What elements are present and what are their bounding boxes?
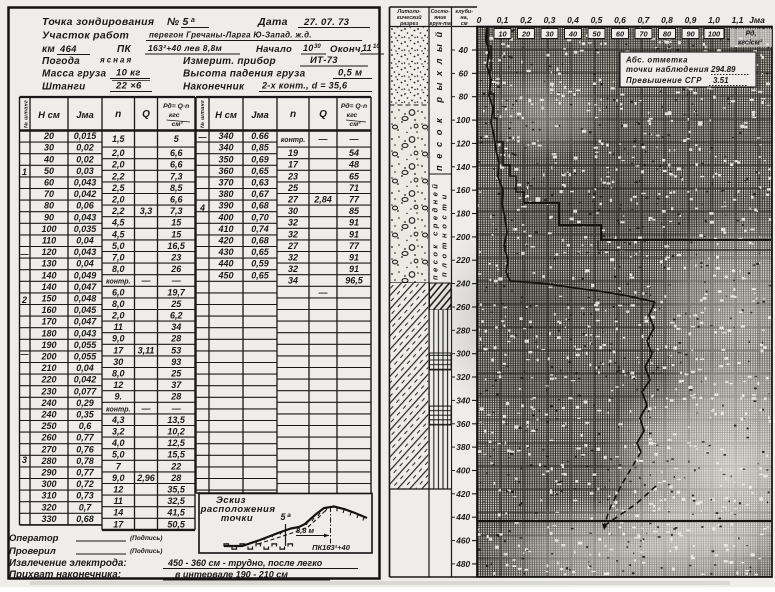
svg-text:71: 71	[349, 183, 359, 193]
svg-text:0,68: 0,68	[251, 236, 269, 246]
svg-text:310: 310	[41, 491, 56, 501]
svg-text:Q: Q	[142, 109, 150, 120]
svg-text:Јма: Јма	[749, 15, 765, 25]
svg-text:15,5: 15,5	[167, 450, 186, 460]
svg-text:Јма: Јма	[76, 110, 94, 121]
svg-text:глуби-: глуби-	[455, 8, 473, 15]
svg-text:4,0: 4,0	[111, 438, 125, 448]
svg-text:32: 32	[288, 253, 298, 263]
svg-text:в интервале 190 - 210 см: в интервале 190 - 210 см	[175, 570, 288, 580]
svg-text:17: 17	[288, 160, 299, 170]
svg-text:11: 11	[362, 43, 372, 53]
svg-text:1,5: 1,5	[112, 134, 126, 144]
svg-text:2: 2	[21, 295, 27, 305]
svg-text:0,042: 0,042	[74, 189, 97, 199]
svg-text:120: 120	[41, 247, 56, 257]
svg-text:—: —	[171, 276, 182, 286]
svg-text:5,0: 5,0	[112, 241, 125, 251]
svg-text:28: 28	[170, 473, 181, 483]
svg-text:см²: см²	[349, 121, 361, 128]
svg-text:2,96: 2,96	[136, 473, 156, 483]
svg-text:10: 10	[373, 44, 380, 50]
svg-text:0,63: 0,63	[251, 178, 269, 188]
svg-text:2,0: 2,0	[111, 195, 125, 205]
svg-text:3,11: 3,11	[138, 345, 155, 355]
svg-text:0,2: 0,2	[520, 15, 532, 25]
svg-text:22: 22	[170, 461, 181, 471]
svg-text:280: 280	[40, 456, 56, 466]
svg-text:230: 230	[40, 386, 56, 396]
svg-text:130: 130	[41, 259, 56, 269]
svg-text:Превышение СГР: Превышение СГР	[626, 76, 702, 85]
svg-text:0,04: 0,04	[76, 259, 94, 269]
svg-text:0,72: 0,72	[76, 479, 94, 489]
svg-text:0,055: 0,055	[74, 352, 98, 362]
svg-text:а: а	[191, 17, 195, 24]
svg-text:ясная: ясная	[99, 56, 133, 65]
svg-text:км: км	[42, 44, 55, 55]
svg-text:464: 464	[59, 44, 77, 55]
svg-text:27: 27	[287, 195, 299, 205]
svg-text:70: 70	[44, 189, 54, 199]
svg-text:0,04: 0,04	[76, 236, 94, 246]
svg-text:8,0: 8,0	[112, 369, 125, 379]
svg-text:93: 93	[171, 357, 181, 367]
svg-text:410: 410	[217, 224, 233, 234]
svg-text:90: 90	[686, 30, 695, 39]
svg-text:см²: см²	[172, 121, 184, 128]
svg-text:0,76: 0,76	[76, 444, 95, 454]
svg-text:160: 160	[456, 185, 470, 195]
svg-text:35,5: 35,5	[167, 485, 186, 495]
svg-text:Н см: Н см	[215, 110, 237, 121]
svg-text:0,043: 0,043	[74, 328, 97, 338]
svg-text:330: 330	[41, 514, 56, 524]
svg-text:96,5: 96,5	[345, 276, 364, 286]
svg-text:32,5: 32,5	[167, 496, 186, 506]
svg-text:0,9: 0,9	[685, 15, 697, 25]
svg-text:100: 100	[456, 115, 470, 125]
svg-text:Погода: Погода	[42, 56, 80, 67]
svg-text:0,3: 0,3	[544, 15, 556, 25]
svg-text:—: —	[318, 287, 329, 297]
svg-text:Дата: Дата	[257, 16, 288, 28]
svg-text:300: 300	[41, 479, 56, 489]
svg-text:Оператор: Оператор	[9, 533, 59, 544]
svg-text:25: 25	[287, 183, 299, 193]
svg-text:12: 12	[113, 380, 123, 390]
svg-text:290: 290	[40, 468, 56, 478]
svg-text:Рд,: Рд,	[746, 30, 757, 38]
svg-text:0,29: 0,29	[76, 398, 94, 408]
svg-text:6,6: 6,6	[170, 148, 184, 158]
svg-text:0,5 м: 0,5 м	[338, 68, 362, 79]
svg-text:380: 380	[218, 189, 233, 199]
svg-text:2,5: 2,5	[111, 183, 126, 193]
svg-text:0,77: 0,77	[76, 433, 95, 443]
svg-text:70: 70	[639, 30, 648, 39]
svg-text:11: 11	[114, 496, 123, 506]
svg-text:1,1: 1,1	[732, 15, 744, 25]
svg-text:25: 25	[170, 299, 182, 309]
svg-text:4,5: 4,5	[111, 229, 126, 239]
svg-text:0,06: 0,06	[76, 201, 95, 211]
svg-text:4,5: 4,5	[111, 218, 126, 228]
svg-text:0.66: 0.66	[251, 131, 270, 141]
svg-text:8,0: 8,0	[112, 299, 125, 309]
svg-text:20: 20	[521, 30, 531, 39]
svg-text:0,03: 0,03	[76, 166, 94, 176]
svg-text:54: 54	[349, 148, 359, 158]
svg-text:0,043: 0,043	[74, 178, 97, 188]
svg-text:140: 140	[456, 162, 470, 172]
svg-text:2,0: 2,0	[111, 311, 125, 321]
svg-text:0,4: 0,4	[567, 15, 579, 25]
svg-text:27: 27	[287, 241, 299, 251]
svg-text:0,69: 0,69	[251, 154, 269, 164]
svg-text:91: 91	[349, 218, 359, 228]
svg-text:240: 240	[40, 410, 56, 420]
svg-text:370: 370	[218, 178, 233, 188]
svg-text:0,8: 0,8	[661, 15, 673, 25]
svg-text:10: 10	[498, 30, 507, 39]
svg-text:120: 120	[456, 138, 470, 148]
svg-text:0,055: 0,055	[74, 340, 98, 350]
svg-text:0,70: 0,70	[251, 212, 269, 222]
svg-text:Прихват наконечника:: Прихват наконечника:	[9, 570, 121, 581]
svg-text:Масса груза: Масса груза	[42, 69, 106, 80]
svg-text:15: 15	[171, 229, 182, 239]
svg-text:460: 460	[455, 536, 470, 546]
svg-text:3.51: 3.51	[713, 76, 729, 85]
svg-text:1,0: 1,0	[708, 15, 720, 25]
svg-text:14: 14	[113, 508, 123, 518]
svg-text:Штанги: Штанги	[42, 82, 86, 93]
svg-text:10: 10	[303, 43, 314, 53]
svg-text:Оконч.: Оконч.	[330, 44, 364, 55]
svg-text:440: 440	[455, 512, 470, 522]
svg-text:9,0: 9,0	[112, 473, 125, 483]
svg-text:26: 26	[170, 264, 182, 274]
svg-text:Точка зондирования: Точка зондирования	[42, 16, 154, 28]
svg-text:8,5: 8,5	[170, 183, 184, 193]
svg-text:0,043: 0,043	[74, 247, 97, 257]
svg-text:0,7: 0,7	[79, 502, 93, 512]
svg-text:400: 400	[455, 466, 470, 476]
svg-text:Проверил: Проверил	[9, 546, 56, 557]
svg-text:163²+40 лев 8,8м: 163²+40 лев 8,8м	[148, 43, 223, 53]
svg-text:2,2: 2,2	[111, 206, 125, 216]
svg-text:15: 15	[171, 218, 182, 228]
svg-text:—: —	[318, 134, 329, 144]
svg-text:0,049: 0,049	[74, 270, 97, 280]
svg-text:40: 40	[43, 154, 54, 164]
svg-text:№ штанг: № штанг	[24, 100, 30, 128]
svg-text:контр.: контр.	[281, 137, 306, 144]
svg-text:30: 30	[113, 357, 123, 367]
svg-text:350: 350	[218, 154, 233, 164]
svg-text:23: 23	[287, 171, 298, 181]
svg-text:Высота падения груза: Высота падения груза	[183, 69, 306, 80]
svg-text:91: 91	[349, 253, 359, 263]
svg-text:13,5: 13,5	[167, 415, 186, 425]
svg-text:n: n	[115, 109, 121, 120]
svg-text:430: 430	[217, 247, 233, 257]
svg-text:0,78: 0,78	[76, 456, 94, 466]
svg-text:450: 450	[217, 270, 233, 280]
svg-text:контр.: контр.	[106, 406, 131, 413]
svg-text:0,65: 0,65	[251, 247, 270, 257]
svg-text:0,67: 0,67	[251, 189, 270, 199]
svg-text:0,043: 0,043	[74, 212, 97, 222]
svg-text:Q: Q	[319, 109, 327, 120]
svg-text:1: 1	[22, 167, 27, 177]
svg-text:140: 140	[41, 282, 56, 292]
svg-text:6,2: 6,2	[170, 311, 183, 321]
svg-text:7,3: 7,3	[170, 171, 183, 181]
svg-text:80: 80	[459, 92, 469, 102]
svg-text:0,35: 0,35	[76, 410, 95, 420]
svg-text:19: 19	[288, 148, 298, 158]
svg-text:400: 400	[217, 212, 233, 222]
svg-text:41,5: 41,5	[166, 508, 186, 518]
svg-text:(Подпись): (Подпись)	[130, 547, 162, 555]
svg-text:0,74: 0,74	[251, 224, 269, 234]
svg-text:4: 4	[199, 203, 205, 213]
svg-text:220: 220	[40, 375, 56, 385]
svg-text:точки наблюдения: точки наблюдения	[626, 65, 709, 74]
svg-text:170: 170	[41, 317, 56, 327]
svg-text:294.89: 294.89	[710, 65, 736, 74]
svg-text:150: 150	[41, 294, 56, 304]
svg-text:0,047: 0,047	[74, 317, 98, 327]
svg-text:140: 140	[41, 270, 56, 280]
svg-text:Рд= Q·n: Рд= Q·n	[163, 102, 189, 110]
svg-text:0,015: 0,015	[74, 131, 98, 141]
svg-text:80: 80	[663, 30, 672, 39]
svg-text:90: 90	[44, 212, 54, 222]
svg-text:6,6: 6,6	[170, 160, 184, 170]
svg-text:250: 250	[40, 421, 56, 431]
svg-text:34: 34	[288, 276, 298, 286]
svg-text:разрез: разрез	[399, 21, 418, 27]
svg-text:30: 30	[288, 206, 298, 216]
svg-text:а: а	[287, 512, 291, 519]
svg-text:0,047: 0,047	[74, 282, 98, 292]
svg-text:4,3: 4,3	[111, 415, 125, 425]
svg-text:2,0: 2,0	[111, 148, 125, 158]
svg-text:7,3: 7,3	[170, 206, 183, 216]
svg-text:0: 0	[477, 15, 482, 25]
svg-text:2-х конт., d = 35,6: 2-х конт., d = 35,6	[261, 81, 348, 91]
svg-text:8,8 м: 8,8 м	[296, 526, 315, 535]
svg-text:360: 360	[218, 166, 233, 176]
svg-text:Наконечник: Наконечник	[183, 82, 245, 93]
svg-text:—: —	[198, 133, 208, 142]
svg-text:—: —	[171, 403, 182, 413]
svg-text:—: —	[20, 250, 30, 259]
svg-text:360: 360	[456, 419, 470, 429]
svg-text:перегон Гречаны-Ларга Ю-Запа: перегон Гречаны-Ларга Ю-Запад. ж.д.	[149, 31, 312, 40]
svg-text:—: —	[20, 350, 30, 359]
svg-text:5,0: 5,0	[112, 450, 125, 460]
svg-text:390: 390	[218, 201, 233, 211]
svg-text:0,65: 0,65	[251, 166, 270, 176]
svg-text:0,7: 0,7	[638, 15, 651, 25]
svg-text:23: 23	[170, 253, 181, 263]
svg-text:100: 100	[41, 224, 56, 234]
svg-text:0,035: 0,035	[74, 224, 98, 234]
svg-text:Измерит. прибор: Измерит. прибор	[183, 55, 276, 67]
svg-text:0,68: 0,68	[76, 514, 94, 524]
svg-text:песок рыхлый: песок рыхлый	[434, 25, 444, 171]
svg-text:420: 420	[455, 489, 470, 499]
svg-text:19,7: 19,7	[167, 287, 186, 297]
svg-text:0,042: 0,042	[74, 375, 97, 385]
svg-text:32: 32	[288, 264, 298, 274]
svg-text:270: 270	[40, 444, 56, 454]
svg-text:60: 60	[459, 68, 469, 78]
svg-text:6,6: 6,6	[170, 195, 184, 205]
svg-text:17: 17	[113, 345, 124, 355]
svg-text:кгс/см²: кгс/см²	[738, 40, 763, 47]
svg-text:8,0: 8,0	[112, 264, 125, 274]
svg-text:ИТ-73: ИТ-73	[310, 55, 338, 66]
svg-text:0,077: 0,077	[74, 386, 98, 396]
svg-text:50: 50	[44, 166, 54, 176]
svg-text:Н см: Н см	[38, 110, 60, 121]
svg-text:точки: точки	[221, 513, 253, 524]
svg-text:28: 28	[170, 392, 181, 402]
svg-text:32: 32	[288, 229, 298, 239]
svg-text:85: 85	[349, 206, 360, 216]
svg-text:100: 100	[708, 30, 721, 39]
svg-text:0,65: 0,65	[251, 270, 270, 280]
svg-text:9.: 9.	[114, 392, 122, 402]
svg-text:10 кг: 10 кг	[116, 68, 141, 79]
svg-text:(Подпись): (Подпись)	[130, 534, 162, 542]
svg-text:91: 91	[349, 229, 359, 239]
svg-text:340: 340	[218, 143, 233, 153]
svg-text:3,2: 3,2	[112, 427, 125, 437]
svg-text:гический: гический	[397, 14, 422, 21]
svg-text:ПК: ПК	[117, 44, 131, 55]
svg-text:40: 40	[458, 45, 469, 55]
svg-text:Участок работ: Участок работ	[42, 30, 129, 42]
svg-text:песок средней: песок средней	[431, 181, 440, 280]
svg-text:0,048: 0,048	[74, 294, 97, 304]
svg-text:190: 190	[41, 340, 56, 350]
svg-text:380: 380	[456, 442, 470, 452]
svg-text:0,73: 0,73	[76, 491, 94, 501]
svg-text:3,3: 3,3	[140, 206, 153, 216]
svg-text:32: 32	[288, 218, 298, 228]
svg-text:160: 160	[41, 305, 56, 315]
svg-text:450 - 360 см - трудно, после: 450 - 360 см - трудно, после легко	[167, 558, 323, 568]
svg-text:2,0: 2,0	[111, 160, 125, 170]
svg-text:34: 34	[171, 322, 181, 332]
svg-text:0,02: 0,02	[76, 143, 94, 153]
svg-text:240: 240	[40, 398, 56, 408]
svg-text:40: 40	[568, 30, 578, 39]
svg-text:n: n	[290, 109, 296, 120]
svg-text:77: 77	[349, 241, 360, 251]
svg-text:17: 17	[113, 519, 124, 529]
svg-text:0,59: 0,59	[251, 259, 269, 269]
svg-text:0,045: 0,045	[74, 305, 98, 315]
svg-text:480: 480	[455, 559, 470, 569]
svg-text:340: 340	[218, 131, 233, 141]
svg-text:6,0: 6,0	[112, 287, 125, 297]
svg-text:0,1: 0,1	[497, 15, 509, 25]
svg-text:77: 77	[349, 195, 360, 205]
svg-text:9,0: 9,0	[112, 334, 125, 344]
svg-text:см: см	[461, 21, 468, 27]
svg-text:0,02: 0,02	[76, 154, 94, 164]
svg-text:25: 25	[170, 369, 182, 379]
svg-text:200: 200	[40, 352, 56, 362]
svg-text:60: 60	[616, 30, 625, 39]
svg-text:27. 07. 73: 27. 07. 73	[303, 17, 350, 28]
svg-text:0,6: 0,6	[79, 421, 93, 431]
svg-text:контр.: контр.	[106, 279, 131, 286]
svg-text:12: 12	[113, 485, 123, 495]
svg-text:260: 260	[40, 433, 56, 443]
svg-text:50: 50	[592, 30, 601, 39]
svg-text:37: 37	[171, 380, 182, 390]
svg-text:50,5: 50,5	[167, 519, 186, 529]
svg-text:2,84: 2,84	[313, 195, 332, 205]
svg-text:180: 180	[41, 328, 56, 338]
svg-text:Абс. отметка: Абс. отметка	[625, 56, 688, 65]
svg-text:0,85: 0,85	[251, 143, 270, 153]
svg-text:0,68: 0,68	[251, 201, 269, 211]
svg-text:11: 11	[114, 322, 123, 332]
svg-text:3: 3	[22, 455, 27, 465]
svg-text:48: 48	[348, 160, 359, 170]
svg-text:320: 320	[41, 502, 56, 512]
svg-text:30: 30	[314, 44, 321, 50]
svg-text:—: —	[141, 276, 152, 286]
svg-text:0,77: 0,77	[76, 468, 95, 478]
svg-text:—: —	[349, 134, 360, 144]
svg-text:12,5: 12,5	[167, 438, 186, 448]
svg-text:0,5: 0,5	[591, 15, 603, 25]
svg-text:22 ×6: 22 ×6	[115, 81, 142, 92]
svg-text:0,04: 0,04	[76, 363, 94, 373]
svg-text:91: 91	[349, 264, 359, 274]
svg-text:2,2: 2,2	[111, 171, 125, 181]
svg-text:20: 20	[43, 131, 54, 141]
svg-text:53: 53	[171, 345, 181, 355]
svg-text:№ штанг: № штанг	[200, 100, 206, 128]
svg-text:Јма: Јма	[251, 110, 269, 121]
svg-text:420: 420	[217, 236, 233, 246]
svg-text:кгс: кгс	[347, 112, 358, 119]
svg-text:440: 440	[217, 259, 233, 269]
svg-text:210: 210	[40, 363, 56, 373]
svg-text:110: 110	[42, 236, 56, 246]
svg-text:60: 60	[44, 178, 54, 188]
svg-text:0,6: 0,6	[614, 15, 626, 25]
svg-text:кгс: кгс	[169, 112, 180, 119]
svg-text:—: —	[141, 403, 152, 413]
svg-text:7,0: 7,0	[112, 253, 125, 263]
svg-text:180: 180	[456, 209, 470, 219]
svg-text:30: 30	[44, 143, 54, 153]
svg-text:80: 80	[44, 201, 54, 211]
svg-text:16,5: 16,5	[167, 241, 186, 251]
